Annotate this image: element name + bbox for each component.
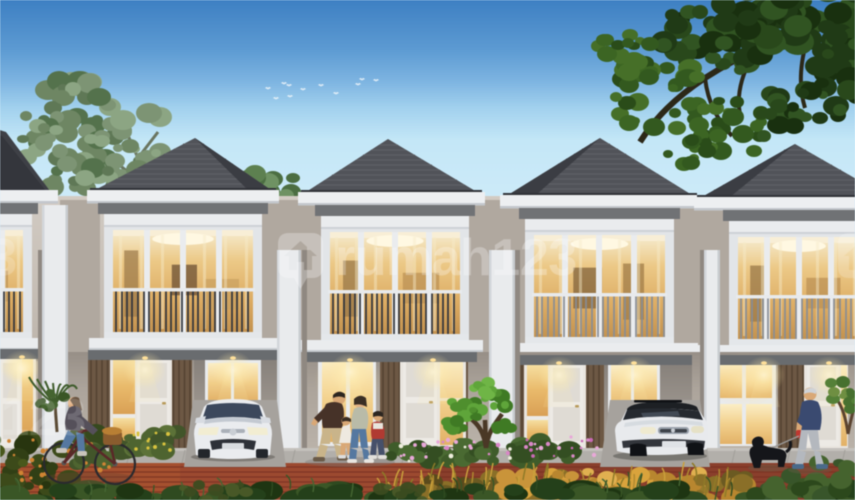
- svg-text:rumah123: rumah123: [0, 389, 86, 447]
- svg-text:rumah123: rumah123: [0, 229, 17, 287]
- svg-text:rumah123: rumah123: [335, 229, 577, 287]
